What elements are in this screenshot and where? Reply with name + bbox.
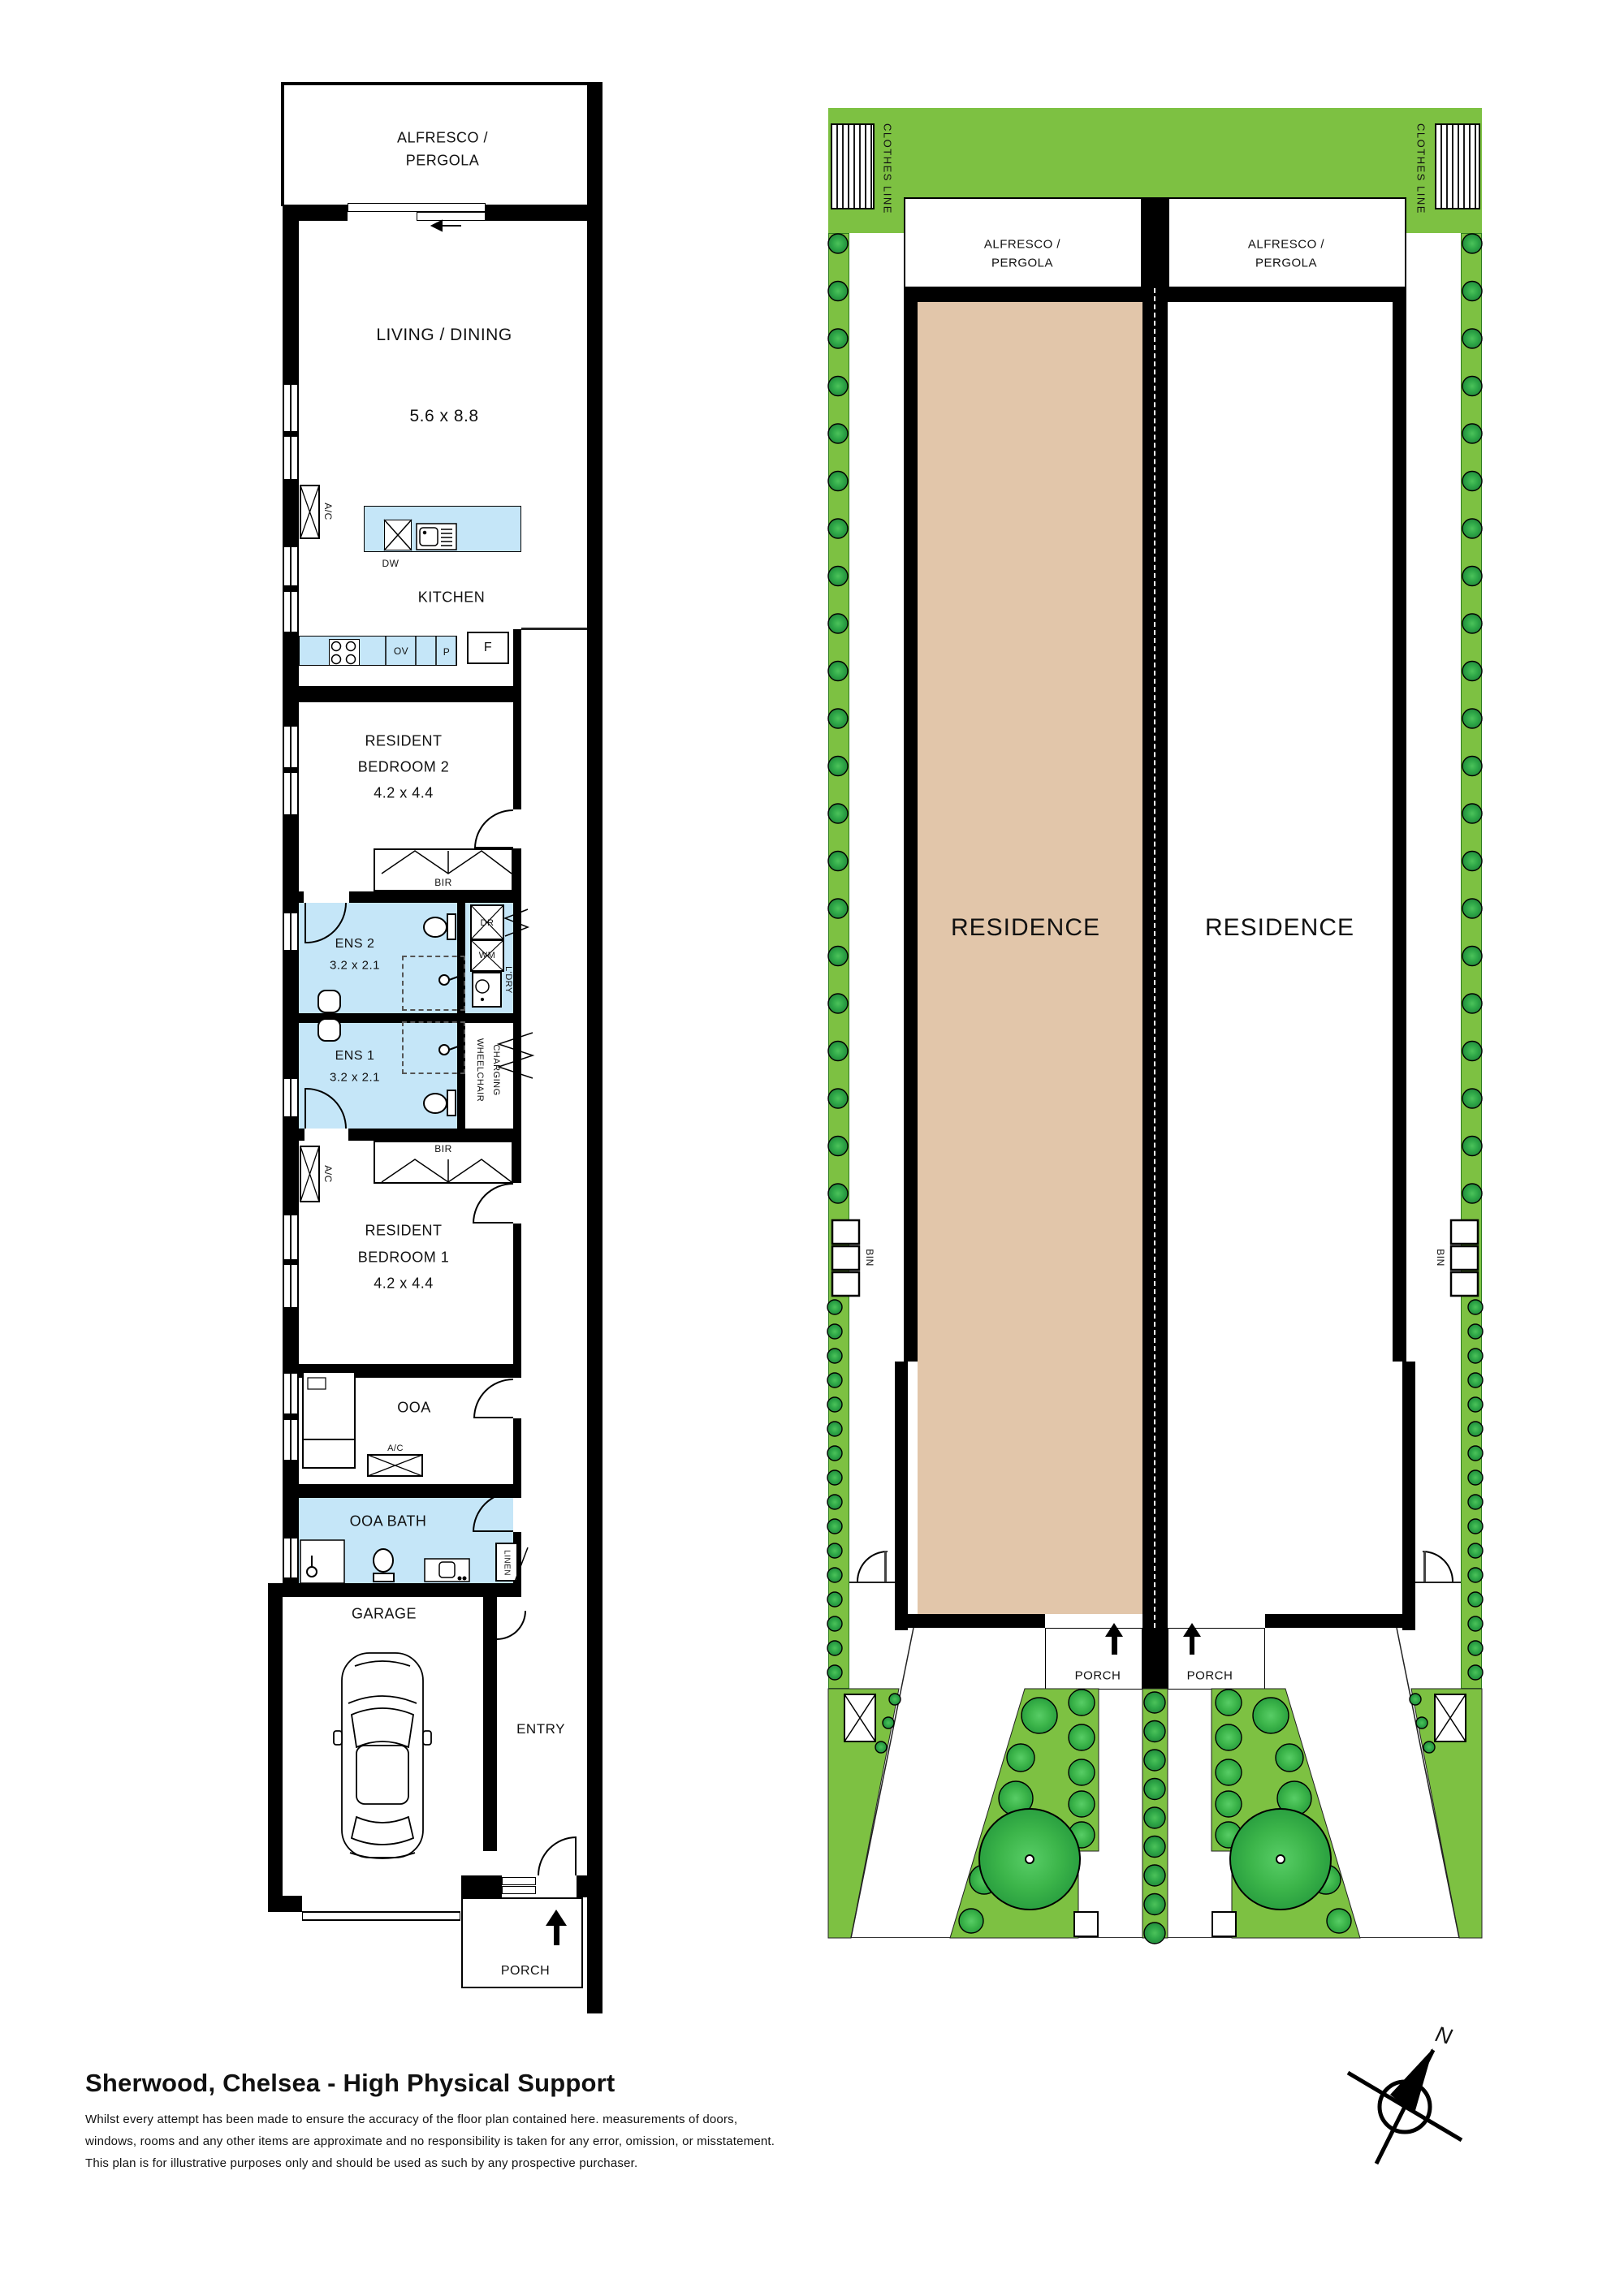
ens2-dims: 3.2 x 2.1 <box>330 959 380 973</box>
dishwasher-box <box>384 520 412 550</box>
residence-right-fill <box>1168 302 1393 1614</box>
ooa-bath-label: OOA BATH <box>350 1513 427 1530</box>
ens2-shower-zone <box>402 956 465 1011</box>
sliding-door-panel <box>417 212 486 221</box>
disclaimer-text: Whilst every attempt has been made to en… <box>85 2113 737 2126</box>
dw-label: DW <box>382 558 400 569</box>
clothesline-label: CLOTHES LINE <box>1415 123 1427 214</box>
garage-door-internal <box>497 1611 526 1640</box>
bir-label: BIR <box>434 1143 452 1154</box>
cooktop-box <box>329 639 360 666</box>
ac-label: A/C <box>322 503 334 520</box>
clothesline-right-icon <box>1435 123 1480 209</box>
living-dining-label: LIVING / DINING <box>376 326 512 345</box>
site-porch-label: PORCH <box>1187 1669 1233 1683</box>
party-wall-seam <box>1154 288 1155 1628</box>
disclaimer-text: windows, rooms and any other items are a… <box>85 2134 775 2148</box>
entry-label: ENTRY <box>516 1721 565 1737</box>
window-icon <box>283 383 299 433</box>
bed-icon <box>303 1372 355 1468</box>
window-icon <box>283 912 299 952</box>
fp-porch-label: PORCH <box>501 1964 550 1979</box>
bedroom2-door <box>474 809 513 848</box>
bedroom2-label: RESIDENT <box>365 733 442 750</box>
window-icon <box>283 1372 299 1415</box>
front-door <box>538 1836 577 1875</box>
bedroom1-door <box>473 1183 513 1224</box>
window-icon <box>283 546 299 587</box>
dryer-label: DR <box>481 918 495 928</box>
bir-label: BIR <box>434 877 452 888</box>
ens1-dims: 3.2 x 2.1 <box>330 1071 380 1085</box>
window-icon <box>283 1077 299 1118</box>
ens1-shower-zone <box>402 1021 465 1074</box>
garage-label: GARAGE <box>352 1606 417 1623</box>
page-title: Sherwood, Chelsea - High Physical Suppor… <box>85 2069 615 2098</box>
ens1-label: ENS 1 <box>335 1049 375 1064</box>
window-icon <box>283 1537 299 1579</box>
site-alfresco-label: PERGOLA <box>991 257 1053 270</box>
entry-threshold <box>502 1877 536 1885</box>
bin-label: BIN <box>864 1249 875 1267</box>
car-icon <box>334 1653 431 1858</box>
bedroom2-dims: 4.2 x 4.4 <box>374 785 434 802</box>
side-garden-right <box>1461 233 1482 1689</box>
entry-threshold <box>502 1886 536 1894</box>
disclaimer-text: This plan is for illustrative purposes o… <box>85 2156 637 2170</box>
bedroom1-label: BEDROOM 1 <box>358 1249 450 1267</box>
residence-label: RESIDENCE <box>1205 914 1354 942</box>
north-label: N <box>1433 2022 1454 2050</box>
clothesline-left-icon <box>831 123 875 209</box>
pantry-label: P <box>443 646 451 658</box>
slider-arrow-icon <box>432 221 461 231</box>
ac-label: A/C <box>387 1444 404 1453</box>
ooa-door <box>473 1379 513 1418</box>
wheelchair-label: WHEELCHAIR <box>475 1038 485 1102</box>
ens2-label: ENS 2 <box>335 937 375 952</box>
window-icon <box>283 1214 299 1261</box>
window-icon <box>283 590 299 633</box>
living-dining-dims: 5.6 x 8.8 <box>409 407 478 426</box>
kitchen-label: KITCHEN <box>418 589 486 606</box>
window-icon <box>283 725 299 769</box>
bedroom1-dims: 4.2 x 4.4 <box>374 1275 434 1293</box>
laundry-label: L'DRY <box>503 966 513 994</box>
site-alfresco-label: PERGOLA <box>1255 257 1317 270</box>
site-alfresco-label: ALFRESCO / <box>984 238 1060 252</box>
residence-label: RESIDENCE <box>951 914 1100 942</box>
garage-door <box>302 1911 460 1921</box>
site-alfresco-label: ALFRESCO / <box>1248 238 1324 252</box>
floorplan-page: ALFRESCO / PERGOLA LIVING / DINING 5.6 x… <box>0 0 1624 2296</box>
window-icon <box>283 1418 299 1461</box>
bedroom1-label: RESIDENT <box>365 1223 442 1240</box>
bedroom2-label: BEDROOM 2 <box>358 759 450 776</box>
compass-icon <box>1348 2048 1462 2164</box>
fridge-label: F <box>484 641 492 655</box>
ooa-label: OOA <box>397 1400 431 1417</box>
window-icon <box>283 435 299 481</box>
clothesline-label: CLOTHES LINE <box>882 123 894 214</box>
window-icon <box>283 771 299 816</box>
alfresco-label: PERGOLA <box>406 153 480 170</box>
sliding-door-panel <box>348 203 486 212</box>
alfresco-label: ALFRESCO / <box>397 130 488 147</box>
washer-label: WM <box>479 951 496 960</box>
bin-label: BIN <box>1435 1249 1446 1267</box>
kitchen-bench-fill <box>299 636 457 666</box>
oven-label: OV <box>394 645 408 657</box>
site-porch-label: PORCH <box>1075 1669 1121 1683</box>
window-icon <box>283 1263 299 1309</box>
residence-left-fill <box>918 302 1142 1614</box>
linen-label: LINEN <box>503 1550 512 1576</box>
wheelchair-label: CHARGING <box>491 1044 501 1095</box>
side-garden-left <box>828 233 849 1689</box>
ac-label: A/C <box>322 1165 334 1183</box>
